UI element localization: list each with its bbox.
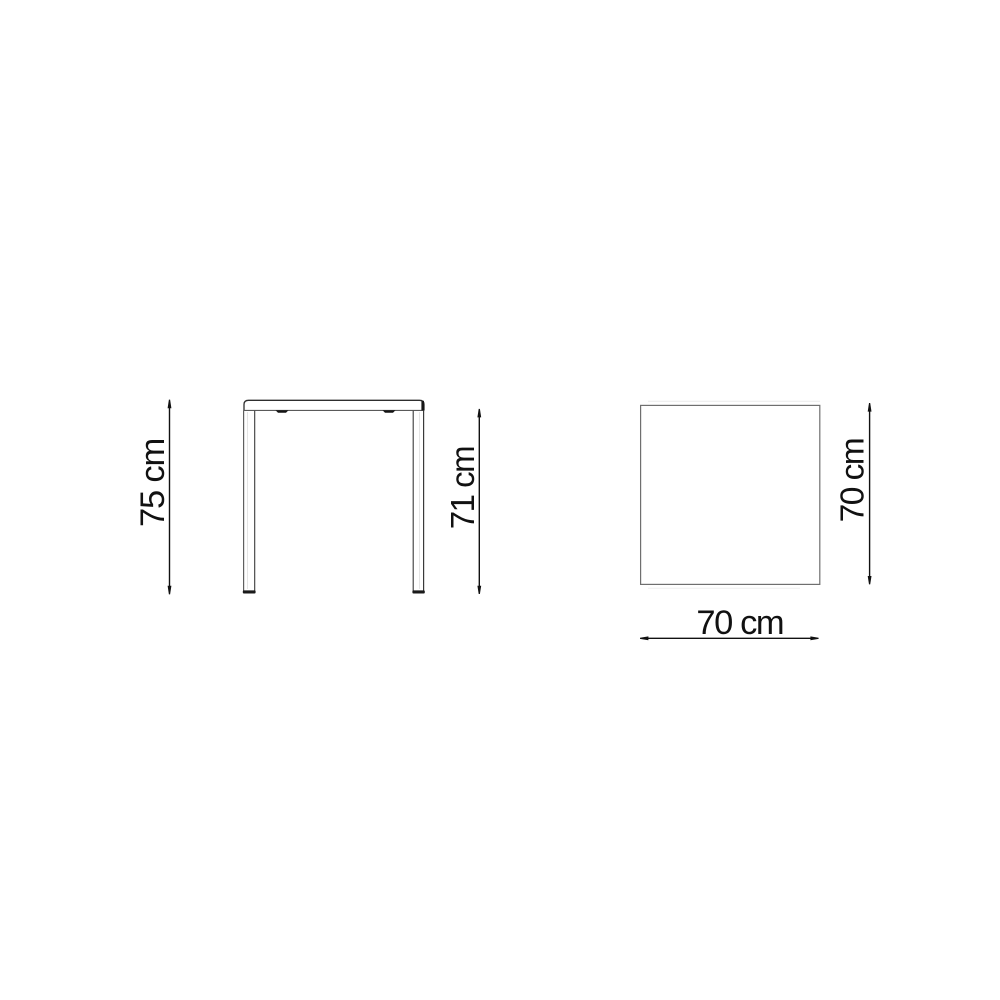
svg-text:70 cm: 70 cm <box>696 604 783 642</box>
svg-text:70 cm: 70 cm <box>834 439 871 522</box>
svg-text:75 cm: 75 cm <box>134 439 172 527</box>
svg-text:71 cm: 71 cm <box>444 447 481 529</box>
